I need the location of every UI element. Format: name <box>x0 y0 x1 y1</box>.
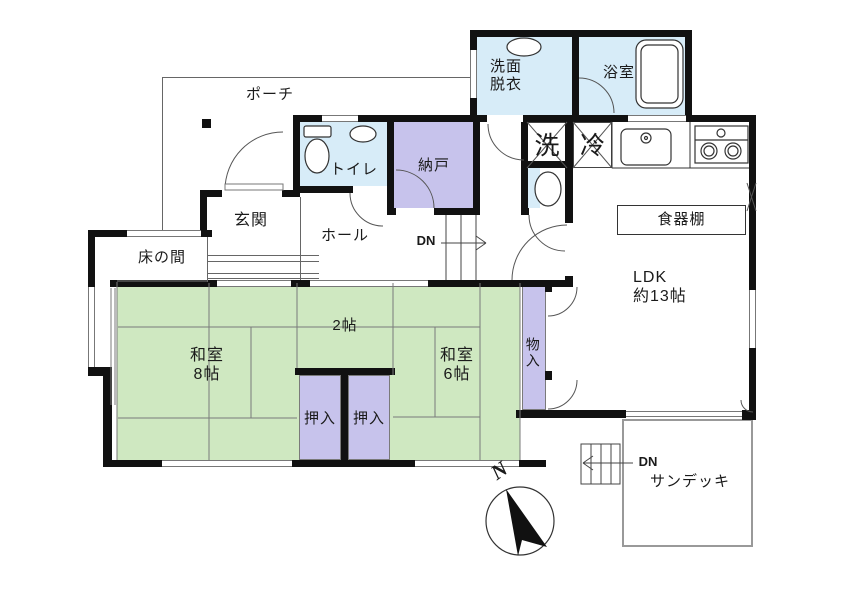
wall-segment <box>521 115 528 215</box>
sink <box>621 129 671 165</box>
wall-segment <box>470 30 692 37</box>
wall-segment <box>545 371 552 380</box>
door-opening <box>222 190 282 197</box>
compass <box>486 487 554 556</box>
floor-plan: ポーチ 洗面 脱衣 浴室 洗 冷 トイレ 納戸 玄関 ホール DN 床の間 和室… <box>0 0 844 597</box>
wall-segment <box>749 115 756 420</box>
step-line <box>207 261 319 262</box>
window <box>322 115 358 122</box>
porch-pillar <box>202 119 211 128</box>
step-line <box>207 273 319 274</box>
label-washer: 洗 <box>527 131 567 161</box>
window <box>749 290 756 348</box>
wall-segment <box>528 161 565 168</box>
label-nando: 納戸 <box>411 157 457 175</box>
wall-segment <box>473 122 480 215</box>
partition-line <box>300 197 301 280</box>
sliding-door <box>626 411 742 417</box>
label-oshiire-right: 押入 <box>349 410 389 428</box>
label-oshiire-left: 押入 <box>300 410 340 428</box>
label-genkan: 玄関 <box>224 211 278 230</box>
wall-segment <box>387 115 480 122</box>
label-2jo: 2帖 <box>324 317 366 335</box>
label-washitsu8: 和室 8帖 <box>179 346 235 384</box>
sliding-door <box>310 280 428 287</box>
label-washitsu6: 和室 6帖 <box>429 346 485 384</box>
wall-segment <box>295 186 353 193</box>
utility-blue-strip <box>528 168 540 208</box>
wall-segment <box>516 410 626 418</box>
window <box>470 50 477 98</box>
label-bathroom: 浴室 <box>594 64 644 82</box>
label-cupboard: 食器棚 <box>617 211 746 229</box>
wall-segment <box>545 283 552 292</box>
label-dn-deck: DN <box>634 454 662 470</box>
stove <box>695 126 748 163</box>
label-hall: ホール <box>312 227 378 245</box>
label-washroom: 洗面 脱衣 <box>483 58 529 94</box>
label-monoire: 物入 <box>524 328 541 378</box>
wall-segment <box>88 237 95 287</box>
kitchen-counter <box>612 122 749 168</box>
wall-segment <box>572 37 579 115</box>
sliding-door <box>217 280 291 287</box>
step-line <box>207 278 319 279</box>
wall-segment <box>685 37 692 115</box>
door-opening <box>396 208 434 215</box>
wall-segment <box>103 374 112 467</box>
door-opening <box>487 115 523 122</box>
label-ldk: LDK 約13帖 <box>633 268 743 306</box>
label-tokonoma: 床の間 <box>131 249 193 267</box>
window <box>628 115 686 122</box>
porch-boundary <box>162 77 470 78</box>
step-line <box>207 255 319 256</box>
wall-segment <box>521 208 529 215</box>
window <box>88 287 95 367</box>
window <box>127 230 201 237</box>
label-fridge: 冷 <box>573 131 612 161</box>
label-sundeck: サンデッキ <box>638 473 742 491</box>
wall-segment <box>293 115 300 197</box>
hall-stairs <box>441 215 486 280</box>
porch-boundary <box>162 77 163 233</box>
compass-needle <box>506 489 547 556</box>
wall-segment <box>341 368 348 467</box>
window <box>162 460 292 467</box>
label-toilet: トイレ <box>322 161 386 179</box>
label-porch: ポーチ <box>235 86 305 104</box>
label-dn-hall: DN <box>413 233 439 249</box>
tokonoma-edge <box>207 237 208 282</box>
wall-segment <box>387 122 394 215</box>
